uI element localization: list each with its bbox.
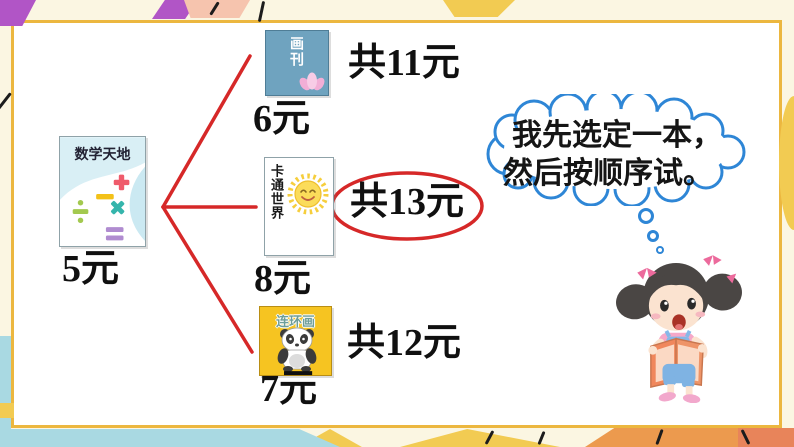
book-pictorial: 画刊 xyxy=(265,30,329,96)
math-lesson-slide: { "colors": { "outer_bg": "#FBF6E2", "fr… xyxy=(0,0,794,447)
book-math-world: 数学天地 xyxy=(59,136,146,247)
total-cartoon-world: 共13元 xyxy=(350,183,464,223)
panda-icon xyxy=(275,325,319,373)
book-cartoon-world: 卡通世界 xyxy=(264,157,334,256)
total-comic: 共12元 xyxy=(347,324,461,364)
bubble-text-line2: 然后按顺序试。 xyxy=(503,148,713,192)
price-comic: 7元 xyxy=(260,370,317,410)
bubble-tail-medium xyxy=(647,230,659,242)
deco-dash-bottom2 xyxy=(537,431,545,445)
price-math-world: 5元 xyxy=(62,250,119,290)
book-title: 画刊 xyxy=(288,36,302,68)
deco-bottom-blue xyxy=(0,429,340,447)
price-cartoon-world: 8元 xyxy=(254,260,311,300)
total-pictorial: 共11元 xyxy=(348,44,460,84)
sun-icon xyxy=(286,171,330,217)
girl-reading-icon xyxy=(614,249,742,403)
book-comic: 连环画 xyxy=(259,306,332,376)
book-title: 卡通世界 xyxy=(270,164,283,220)
lotus-icon xyxy=(299,71,325,93)
deco-bottom-yellow-triangle xyxy=(400,429,560,447)
bubble-tail-large xyxy=(638,208,654,224)
book-title: 数学天地 xyxy=(60,144,145,164)
price-pictorial: 6元 xyxy=(253,100,310,140)
deco-dash-top2 xyxy=(258,1,265,22)
deco-left-tab-yellow xyxy=(0,403,14,418)
deco-top-yellow xyxy=(443,0,515,17)
